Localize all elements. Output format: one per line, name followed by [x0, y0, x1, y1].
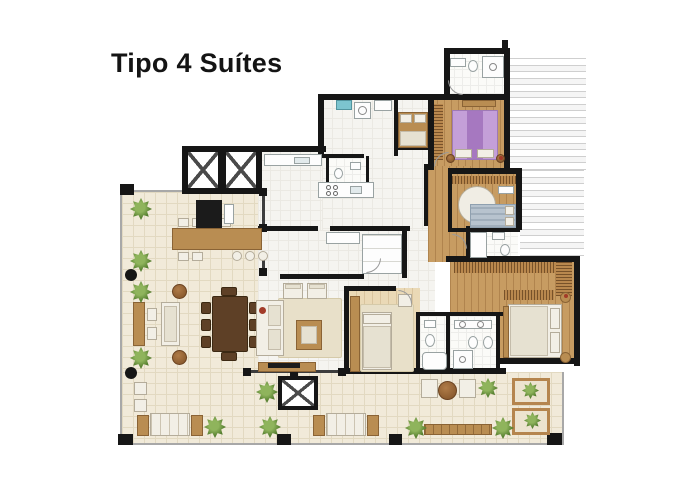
- planter-plant: [522, 382, 539, 399]
- suite1-closet: [434, 104, 443, 160]
- toilet: [500, 244, 510, 256]
- decor-accent: [499, 156, 503, 160]
- bar-stool: [258, 251, 268, 261]
- round-column: [125, 269, 137, 281]
- dining-chair: [201, 336, 211, 348]
- potted-plant: [130, 281, 152, 303]
- wall: [416, 312, 420, 374]
- pillow: [455, 149, 472, 158]
- sun-lounger: [326, 413, 366, 436]
- column: [118, 434, 133, 445]
- terrace-bench: [424, 424, 492, 435]
- potted-plant: [405, 417, 427, 439]
- lounge-cushion: [164, 306, 177, 342]
- wall: [258, 146, 326, 152]
- terrace-chair: [421, 379, 438, 398]
- wall: [502, 40, 508, 54]
- potted-plant: [256, 381, 278, 403]
- potted-plant: [130, 198, 152, 220]
- page-title: Tipo 4 Suítes: [111, 48, 282, 79]
- pillow: [550, 308, 560, 329]
- pillow: [477, 149, 494, 158]
- pillow: [505, 206, 514, 215]
- wall: [318, 94, 324, 154]
- potted-plant: [204, 416, 226, 438]
- bar-stool: [232, 251, 242, 261]
- wall: [402, 226, 407, 278]
- lounger-side-table: [313, 415, 325, 436]
- bed-bench: [503, 306, 509, 358]
- sink: [350, 162, 361, 170]
- tv: [268, 363, 300, 368]
- wall: [344, 286, 396, 291]
- pouf: [172, 350, 187, 365]
- pillow: [414, 114, 426, 123]
- pergola-lower: [520, 170, 584, 256]
- sink: [492, 232, 505, 240]
- wall: [496, 312, 500, 368]
- wall: [444, 48, 450, 98]
- wall: [448, 168, 522, 174]
- stove-burner: [326, 191, 331, 196]
- dining-chair: [201, 319, 211, 331]
- bathtub: [422, 352, 447, 370]
- sink: [450, 58, 466, 67]
- toilet: [483, 336, 493, 349]
- master-closet-east: [556, 262, 572, 296]
- column: [277, 434, 291, 445]
- terrace-chair: [459, 379, 476, 398]
- round-table: [438, 381, 457, 400]
- suite3-headboard-panel: [350, 296, 360, 372]
- wall: [330, 226, 410, 231]
- suite2-desk: [498, 186, 514, 194]
- decor-accent: [564, 294, 568, 298]
- potted-plant: [130, 250, 152, 272]
- lounger-side-table: [191, 415, 203, 436]
- elevator-1: [186, 150, 220, 190]
- hall-cabinet: [326, 232, 360, 244]
- wall: [424, 164, 428, 226]
- kitchen-sink: [294, 157, 310, 164]
- washer-drum: [358, 106, 367, 115]
- suite1-dresser: [462, 100, 496, 107]
- wall-stub: [243, 368, 251, 376]
- column: [389, 434, 402, 445]
- coffee-table-top: [301, 326, 317, 344]
- gourmet-island: [172, 228, 262, 250]
- wall-stub: [338, 368, 346, 376]
- toilet: [468, 60, 478, 72]
- grill-counter: [224, 204, 234, 224]
- chair: [178, 252, 189, 261]
- pillow: [505, 217, 514, 226]
- column: [120, 184, 134, 195]
- master-closet-mid: [504, 290, 554, 300]
- master-closet-north: [454, 262, 570, 273]
- wall: [258, 226, 318, 231]
- bed-sheet: [363, 326, 391, 368]
- nightstand: [560, 352, 571, 363]
- toilet: [425, 334, 435, 347]
- service-stair: [278, 376, 318, 410]
- barbecue-grill: [196, 200, 222, 228]
- chair: [192, 252, 203, 261]
- stove-burner: [326, 185, 331, 190]
- bed-sheet: [400, 131, 426, 146]
- side-table: [134, 399, 147, 412]
- lounger-side-table: [137, 415, 149, 436]
- basin: [459, 321, 466, 328]
- planter-plant: [524, 412, 541, 429]
- laundry-tank: [336, 100, 352, 110]
- toilet: [334, 168, 343, 179]
- sofa-cushion: [268, 305, 281, 326]
- potted-plant: [492, 417, 514, 439]
- sofa-pillow: [259, 307, 266, 314]
- pergola-upper: [508, 58, 586, 170]
- kitchen-sink-2: [350, 186, 362, 194]
- side-table: [134, 382, 147, 395]
- shower-drain: [459, 356, 466, 363]
- pouf: [172, 284, 187, 299]
- stove-burner: [333, 191, 338, 196]
- stove-burner: [333, 185, 338, 190]
- pillow: [400, 114, 412, 123]
- wall: [516, 168, 522, 230]
- suite2-closet: [452, 176, 516, 184]
- armchair-back: [309, 284, 325, 289]
- master-blanket: [510, 306, 548, 356]
- lounger-side-table: [367, 415, 379, 436]
- sink: [424, 320, 436, 328]
- pillow: [363, 314, 391, 324]
- shower-drain: [489, 63, 497, 71]
- wall: [504, 48, 510, 170]
- dining-table: [212, 296, 248, 352]
- floor-plan: Tipo 4 Suítes: [0, 0, 700, 500]
- dining-chair: [221, 352, 237, 361]
- chair: [147, 327, 157, 340]
- potted-plant: [130, 347, 152, 369]
- bar-stool: [245, 251, 255, 261]
- wall: [574, 256, 580, 366]
- wall: [318, 154, 364, 158]
- potted-plant: [259, 416, 281, 438]
- sofa-cushion: [268, 329, 281, 350]
- chair: [147, 308, 157, 321]
- shower: [470, 232, 487, 258]
- bidet: [468, 336, 478, 349]
- laundry-counter: [374, 100, 392, 111]
- elevator-2: [224, 150, 258, 190]
- basin: [477, 321, 484, 328]
- wall: [444, 48, 510, 54]
- pillow: [550, 332, 560, 353]
- round-column: [125, 367, 137, 379]
- dining-chair: [221, 287, 237, 296]
- armchair-back: [285, 284, 301, 289]
- wall: [416, 312, 504, 316]
- dining-chair: [201, 302, 211, 314]
- wall-stub: [259, 268, 267, 276]
- potted-plant: [478, 378, 498, 398]
- chair: [178, 218, 189, 227]
- kitchen-counter: [264, 154, 322, 166]
- wall: [280, 274, 364, 279]
- sideboard: [133, 302, 145, 346]
- sun-lounger: [150, 413, 190, 436]
- wall: [344, 286, 349, 374]
